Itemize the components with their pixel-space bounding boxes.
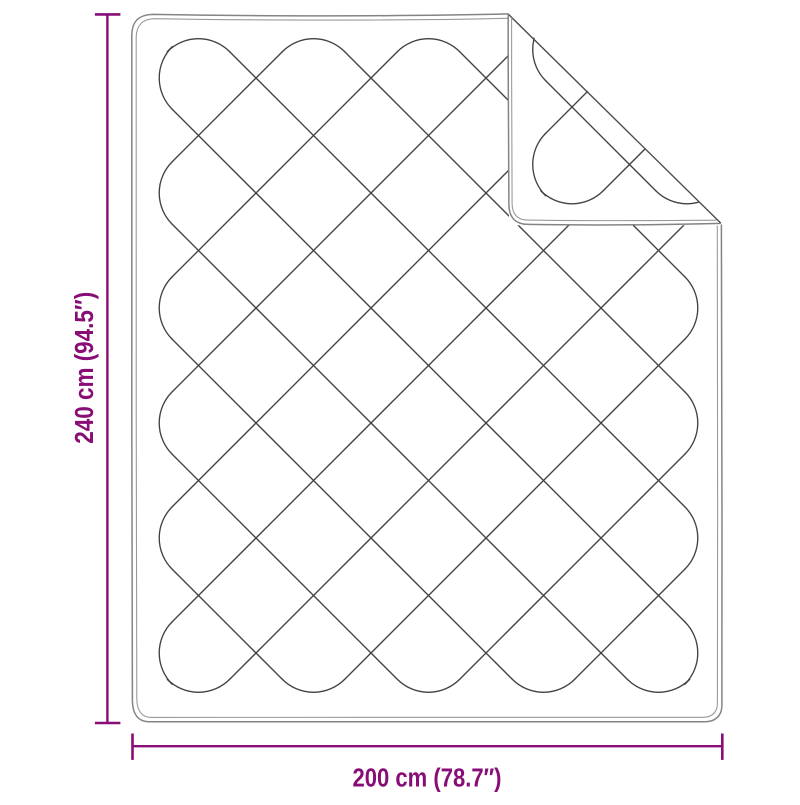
svg-text:240 cm (94.5″): 240 cm (94.5″) [69,292,99,444]
svg-text:200 cm (78.7″): 200 cm (78.7″) [353,763,502,793]
